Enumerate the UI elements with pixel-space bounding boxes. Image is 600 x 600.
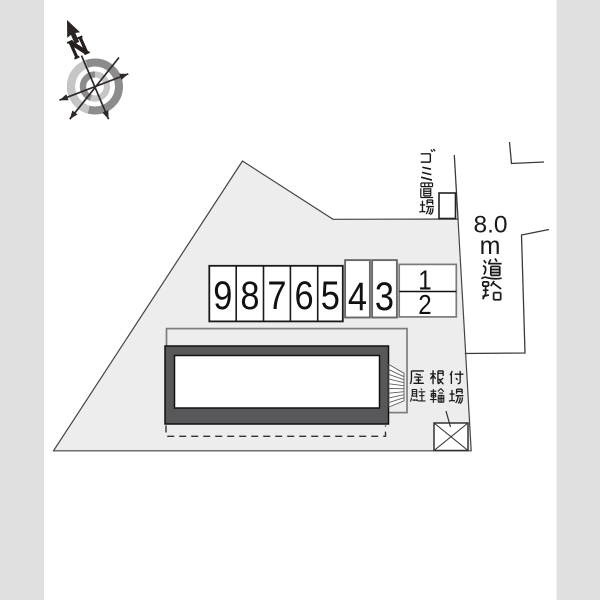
svg-text:3: 3 [375, 273, 394, 318]
svg-text:m: m [480, 232, 501, 260]
svg-text:9: 9 [213, 273, 232, 318]
svg-text:6: 6 [295, 273, 314, 318]
svg-text:5: 5 [321, 273, 340, 318]
svg-text:2: 2 [418, 288, 431, 320]
svg-text:4: 4 [348, 273, 367, 318]
svg-text:8: 8 [240, 273, 259, 318]
svg-text:7: 7 [267, 273, 286, 318]
